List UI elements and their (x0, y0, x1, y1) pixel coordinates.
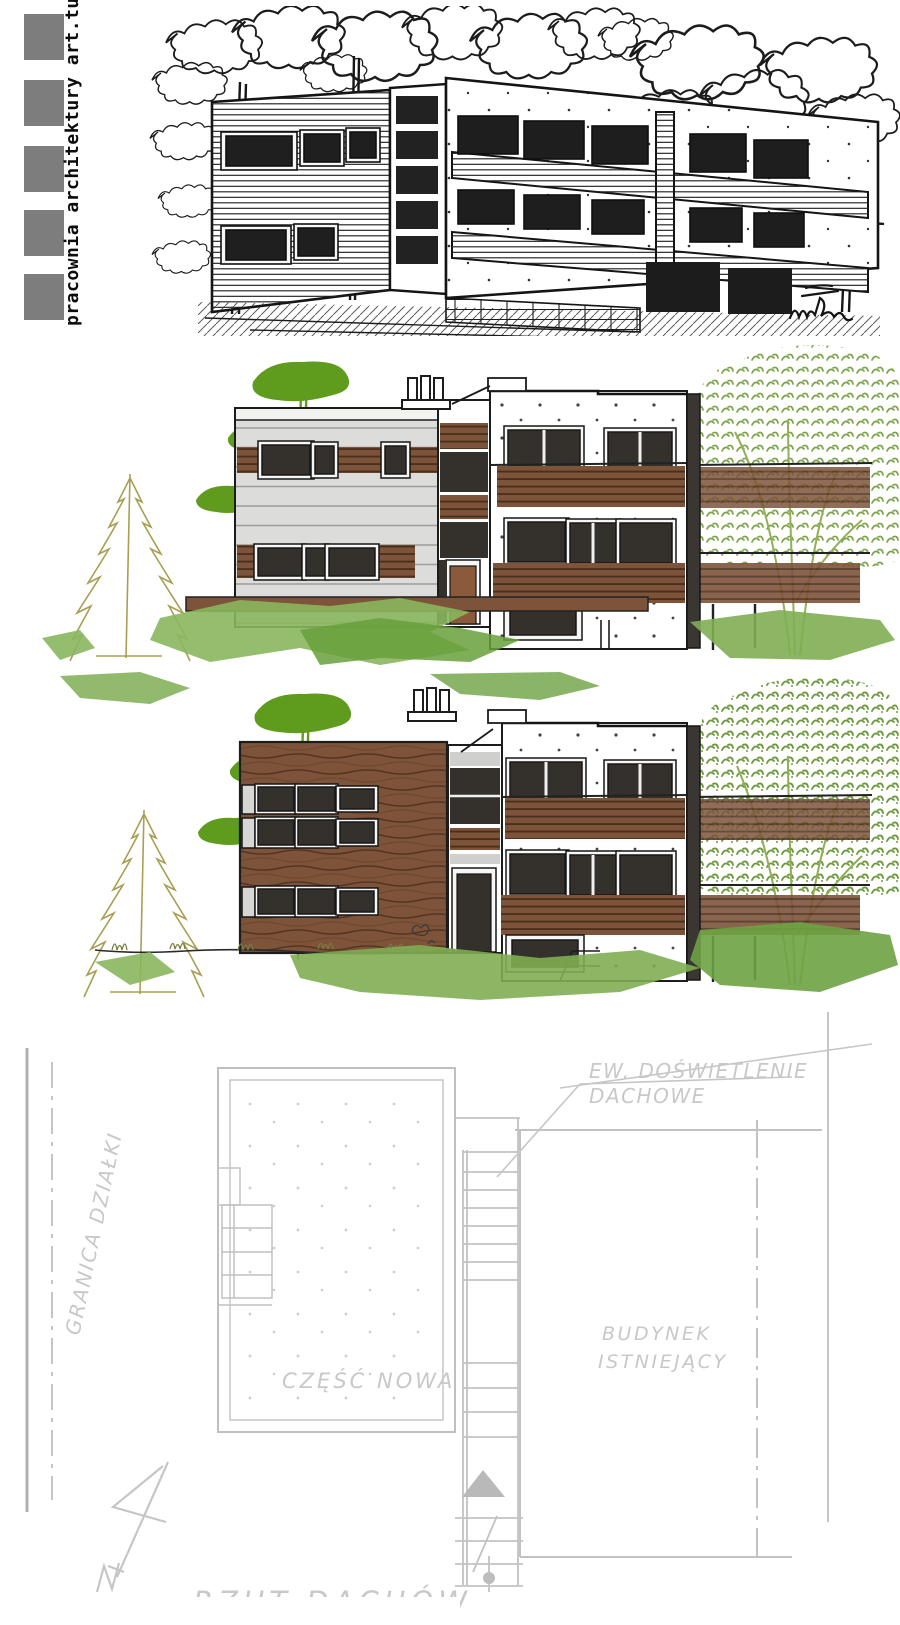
chimney (402, 376, 450, 409)
left-block (235, 408, 438, 627)
sketch-left-block (212, 90, 390, 312)
connector-tower (448, 745, 502, 953)
label-skylight-line2: DACHOWE (589, 1084, 706, 1108)
plot-boundary-lines (27, 1048, 52, 1512)
caption-cutoff-mask (150, 1597, 460, 1625)
entrance-arrow (462, 1470, 505, 1497)
roof-plan-figure: EW. DOŚWIETLENIE DACHOWE GRANICA DZIAŁKI… (0, 1008, 900, 1625)
label-skylight-line1: EW. DOŚWIETLENIE (589, 1059, 808, 1083)
label-existing-line1: BUDYNEK (602, 1323, 711, 1345)
corridor-stairs (455, 1118, 523, 1592)
label-new-part: CZĘŚĆ NOWA (282, 1368, 455, 1393)
north-arrow-sketch (97, 1462, 168, 1592)
elevation-option-2-figure (0, 672, 900, 1008)
new-part-dot-texture (246, 1086, 440, 1414)
elevation-option-1-figure (0, 336, 900, 672)
label-existing-line2: ISTNIEJĄCY (598, 1351, 728, 1373)
chimney (408, 688, 456, 721)
sketch-tower (390, 84, 446, 294)
connector-tower (438, 400, 490, 627)
label-plot-boundary: GRANICA DZIAŁKI (60, 1130, 126, 1337)
perspective-ink-sketch-figure (0, 6, 900, 336)
left-block-wood (240, 742, 447, 953)
